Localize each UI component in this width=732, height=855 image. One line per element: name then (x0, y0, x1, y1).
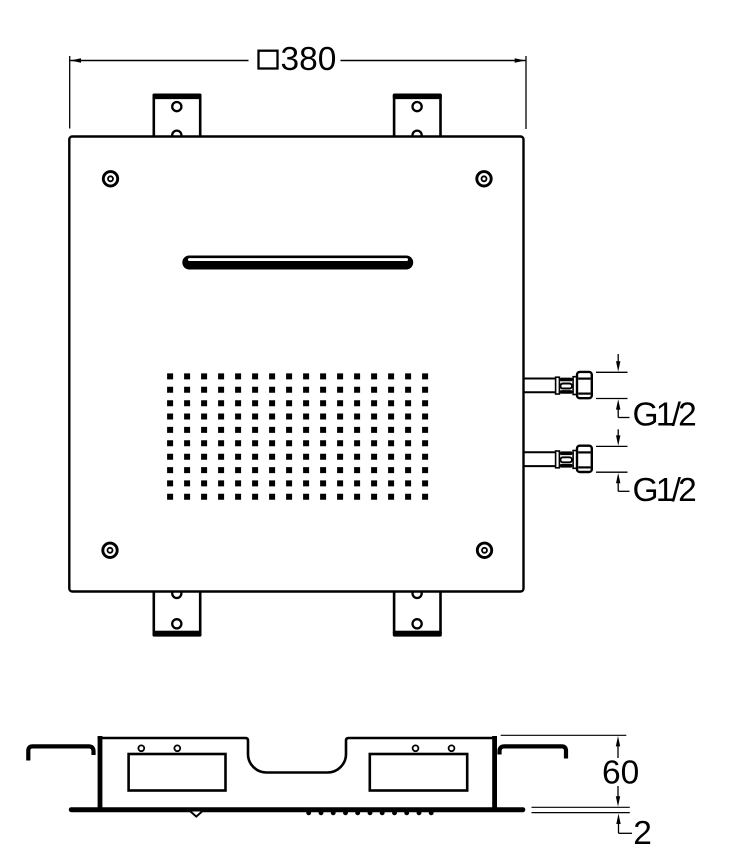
svg-text:G1/2: G1/2 (633, 472, 696, 509)
svg-text:2: 2 (633, 815, 652, 852)
svg-text:60: 60 (602, 755, 639, 792)
svg-text:380: 380 (281, 41, 337, 78)
svg-text:G1/2: G1/2 (633, 397, 696, 434)
